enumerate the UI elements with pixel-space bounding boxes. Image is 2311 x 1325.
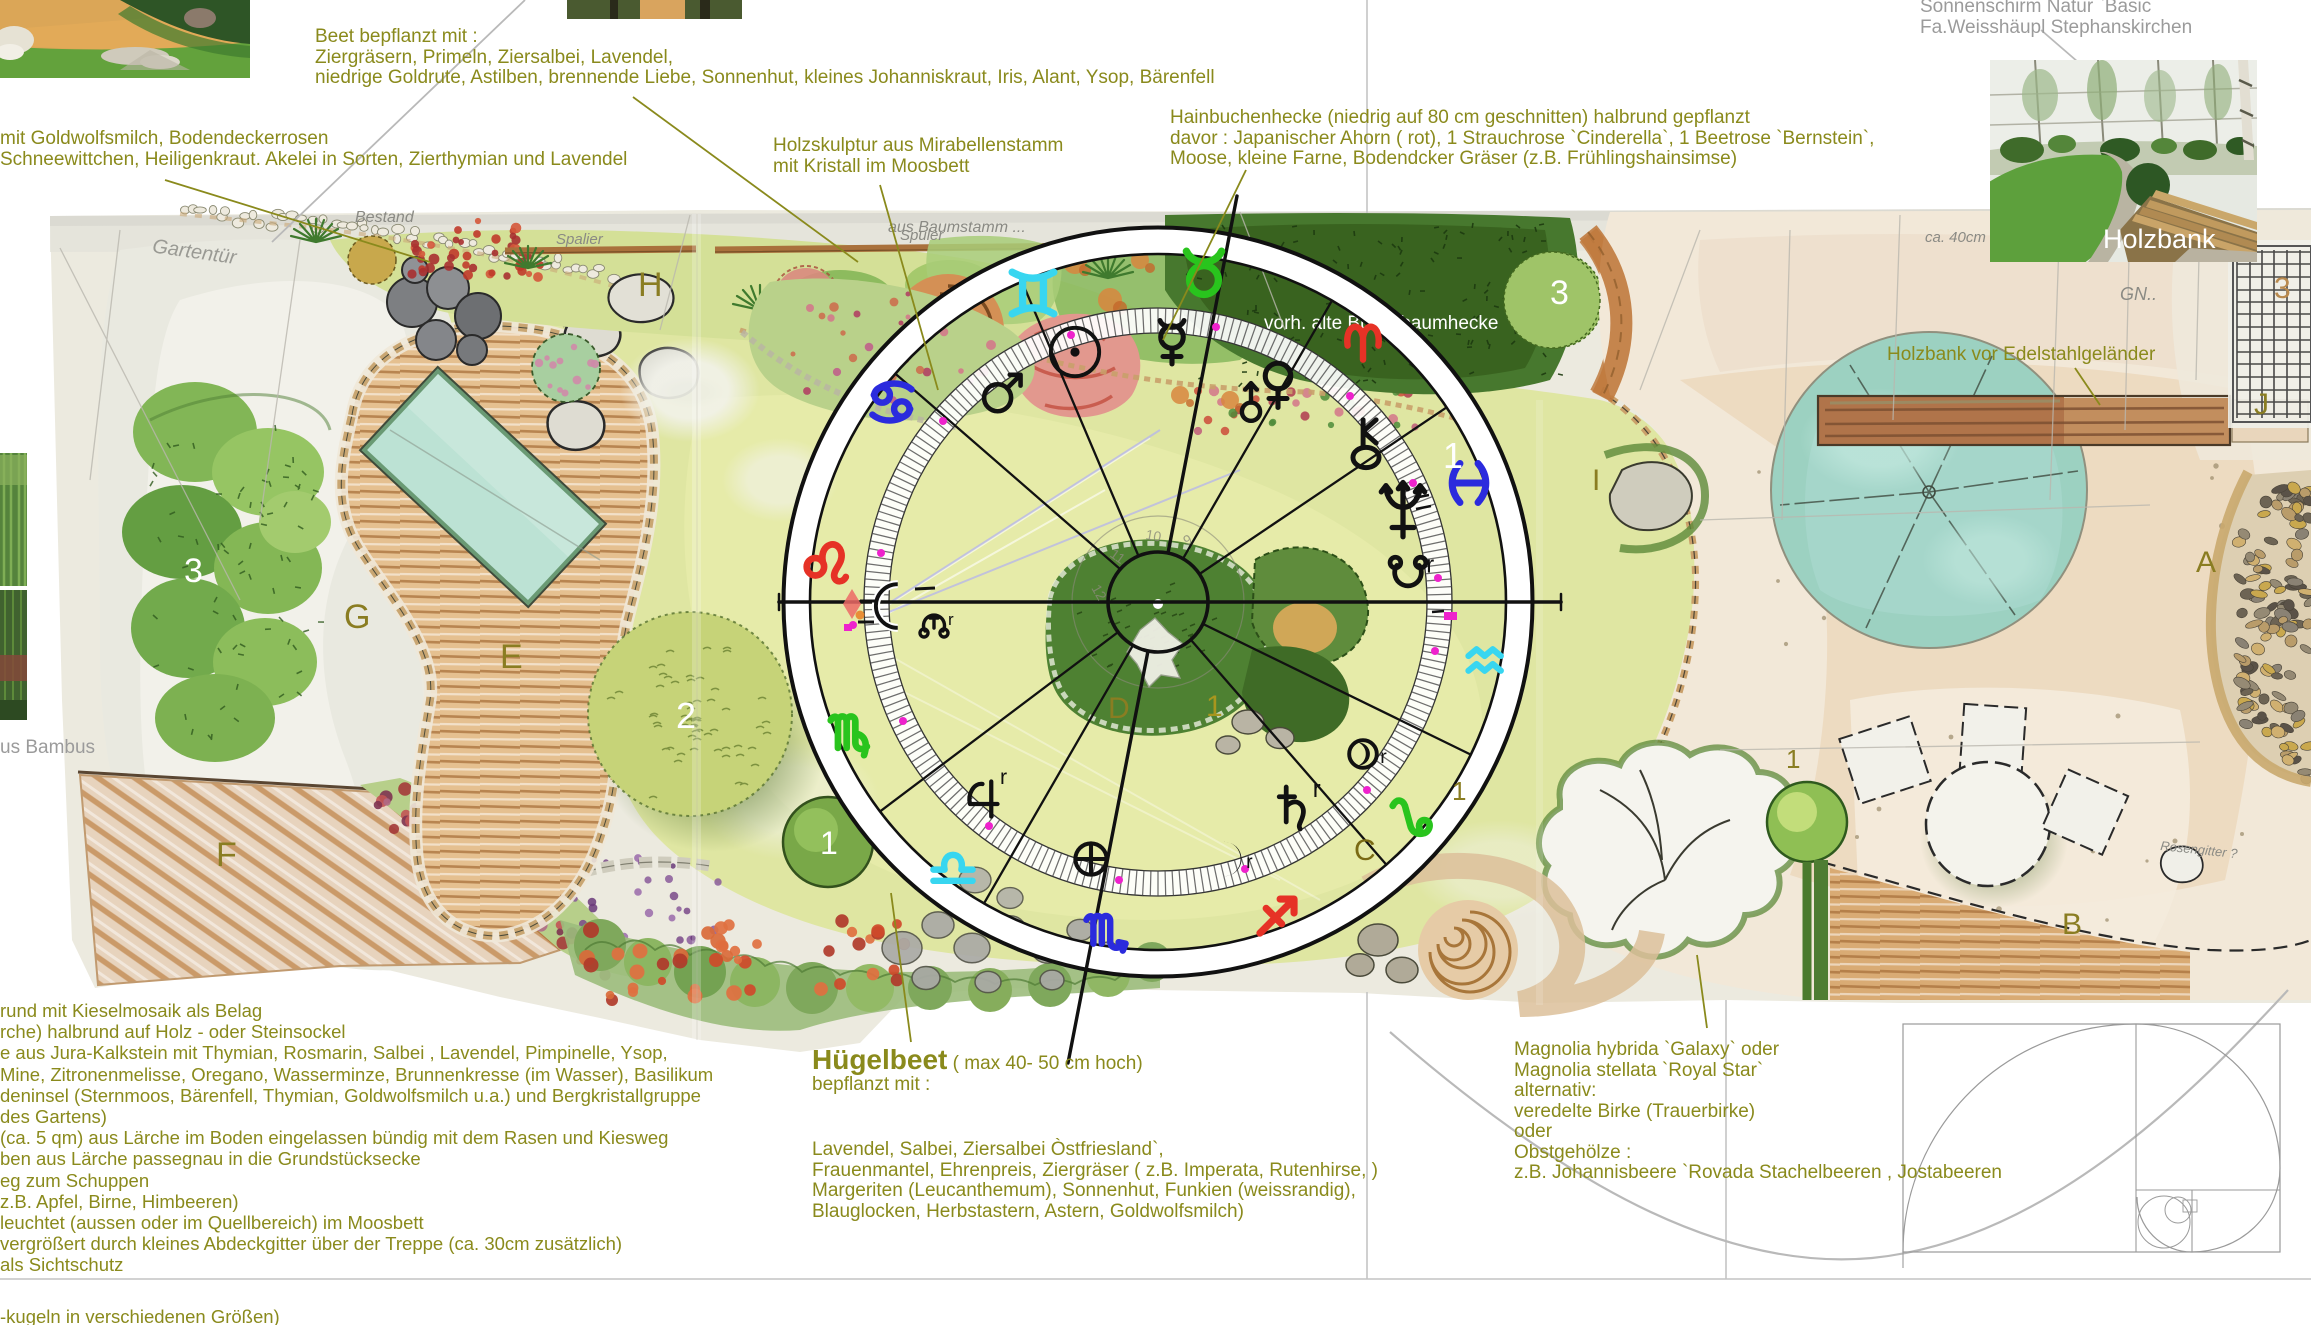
svg-text:D: D	[1108, 692, 1130, 725]
svg-text:E: E	[500, 638, 523, 676]
svg-text:F: F	[216, 836, 237, 874]
svg-text:10: 10	[1144, 526, 1162, 544]
svg-text:3: 3	[2274, 272, 2291, 305]
svg-text:r: r	[1000, 765, 1007, 789]
svg-text:J: J	[2254, 388, 2269, 421]
svg-text:3: 3	[1550, 274, 1569, 312]
svg-text:Bestand: Bestand	[355, 209, 415, 226]
svg-text:1: 1	[1443, 435, 1463, 476]
svg-text:Holzbank: Holzbank	[2103, 224, 2216, 254]
svg-text:B: B	[2062, 908, 2082, 941]
svg-text:3: 3	[184, 552, 203, 590]
svg-text:1: 1	[1786, 744, 1800, 774]
svg-text:1: 1	[1452, 776, 1466, 806]
svg-text:H: H	[638, 266, 663, 304]
svg-text:Spalier: Spalier	[556, 231, 604, 248]
svg-text:2: 2	[676, 695, 696, 736]
svg-text:A: A	[2196, 546, 2216, 579]
svg-text:GN..: GN..	[2120, 284, 2157, 304]
svg-text:r: r	[1426, 551, 1434, 578]
svg-text:Spuler: Spuler	[900, 227, 944, 244]
svg-text:1: 1	[1206, 690, 1223, 723]
svg-text:r: r	[1313, 776, 1321, 803]
svg-text:r: r	[1246, 851, 1253, 873]
svg-text:I: I	[1592, 464, 1600, 497]
svg-text:r: r	[1380, 746, 1387, 768]
svg-text:r: r	[948, 610, 954, 629]
svg-text:ca. 40cm: ca. 40cm	[1925, 229, 1986, 246]
svg-text:G: G	[344, 598, 370, 636]
svg-text:C: C	[1354, 834, 1376, 867]
svg-text:1: 1	[820, 825, 838, 861]
